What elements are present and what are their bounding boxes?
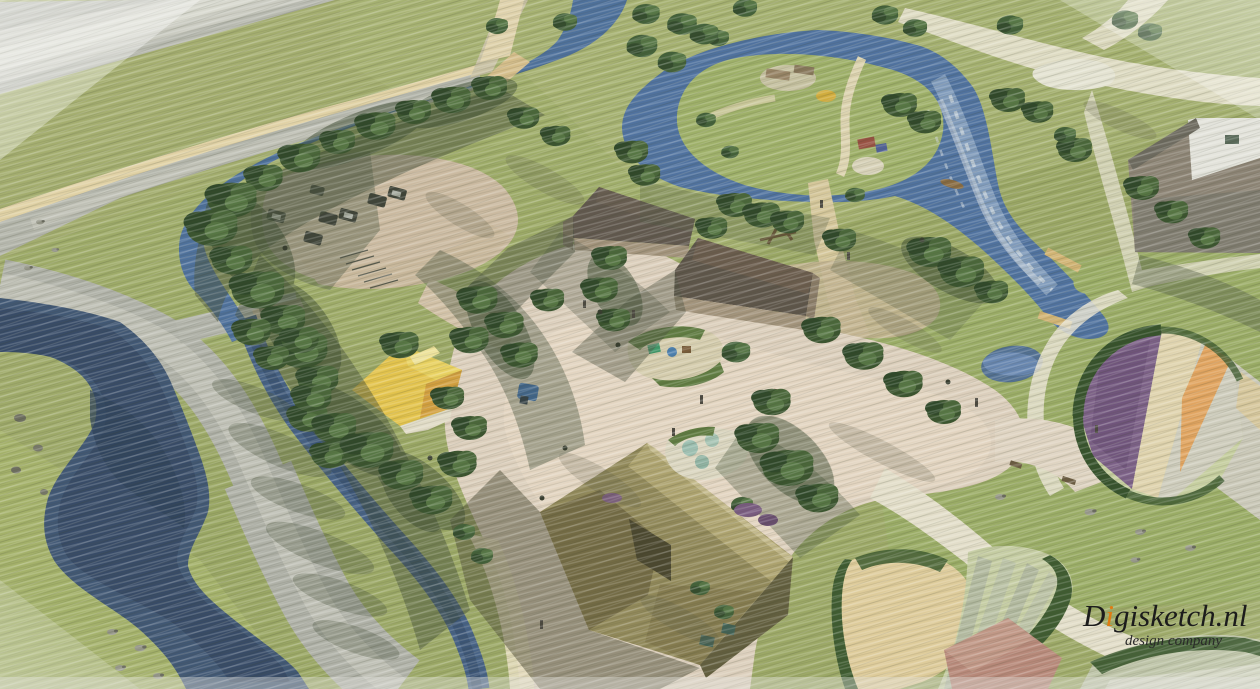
svg-text:design company: design company: [1125, 633, 1222, 649]
svg-text:Digisketch.nl: Digisketch.nl: [1082, 598, 1247, 633]
